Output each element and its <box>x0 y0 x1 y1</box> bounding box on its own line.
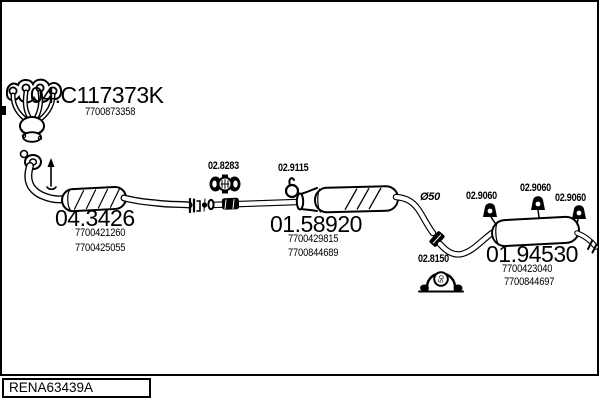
clamp-rear-drawing: 50 <box>419 272 463 291</box>
arrow-up-icon <box>47 158 56 189</box>
frame-tick <box>0 106 6 115</box>
mid-muffler-ref-2: 7700844689 <box>288 248 338 259</box>
mid-pipe-drawing <box>208 198 298 210</box>
clamp-rear-code: 02.8150 <box>418 254 449 265</box>
pipe-diameter-label: Ø50 <box>420 192 440 203</box>
clamp-front-code: 02.8283 <box>208 161 239 172</box>
drawing-number-box: RENA63439A <box>2 378 151 398</box>
rubber-mount-2-drawing <box>531 196 545 217</box>
manifold-code: 04.C117373K <box>30 84 163 107</box>
clamp-size-badge: 50 <box>438 275 446 284</box>
exhaust-diagram: 50 <box>0 0 600 400</box>
manifold-ref: 7700873358 <box>85 107 135 118</box>
front-pipe-drawing <box>28 166 66 199</box>
rear-hanger-code-1: 02.9060 <box>466 191 497 202</box>
rear-hanger-code-2: 02.9060 <box>520 183 551 194</box>
rear-hanger-code-3: 02.9060 <box>555 193 586 204</box>
rear-muffler-ref-2: 7700844697 <box>504 277 554 288</box>
hanger-mid-code: 02.9115 <box>278 163 308 174</box>
catalyst-ref-1: 7700421260 <box>75 228 125 239</box>
drawing-number: RENA63439A <box>9 380 93 395</box>
mid-muffler-ref-1: 7700429815 <box>288 234 338 245</box>
rubber-mount-1-drawing <box>483 203 497 223</box>
catalyst-outlet-pipe-drawing <box>124 198 207 212</box>
rear-muffler-ref-1: 7700423040 <box>502 264 552 275</box>
catalyst-ref-2: 7700425055 <box>75 243 125 254</box>
mid-muffler-drawing <box>297 186 399 213</box>
rear-pipe-drawing <box>396 197 492 254</box>
hanger-mid-drawing <box>286 178 298 197</box>
clamp-front-drawing <box>210 175 241 194</box>
parts-diagram-page: 50 <box>0 0 600 400</box>
